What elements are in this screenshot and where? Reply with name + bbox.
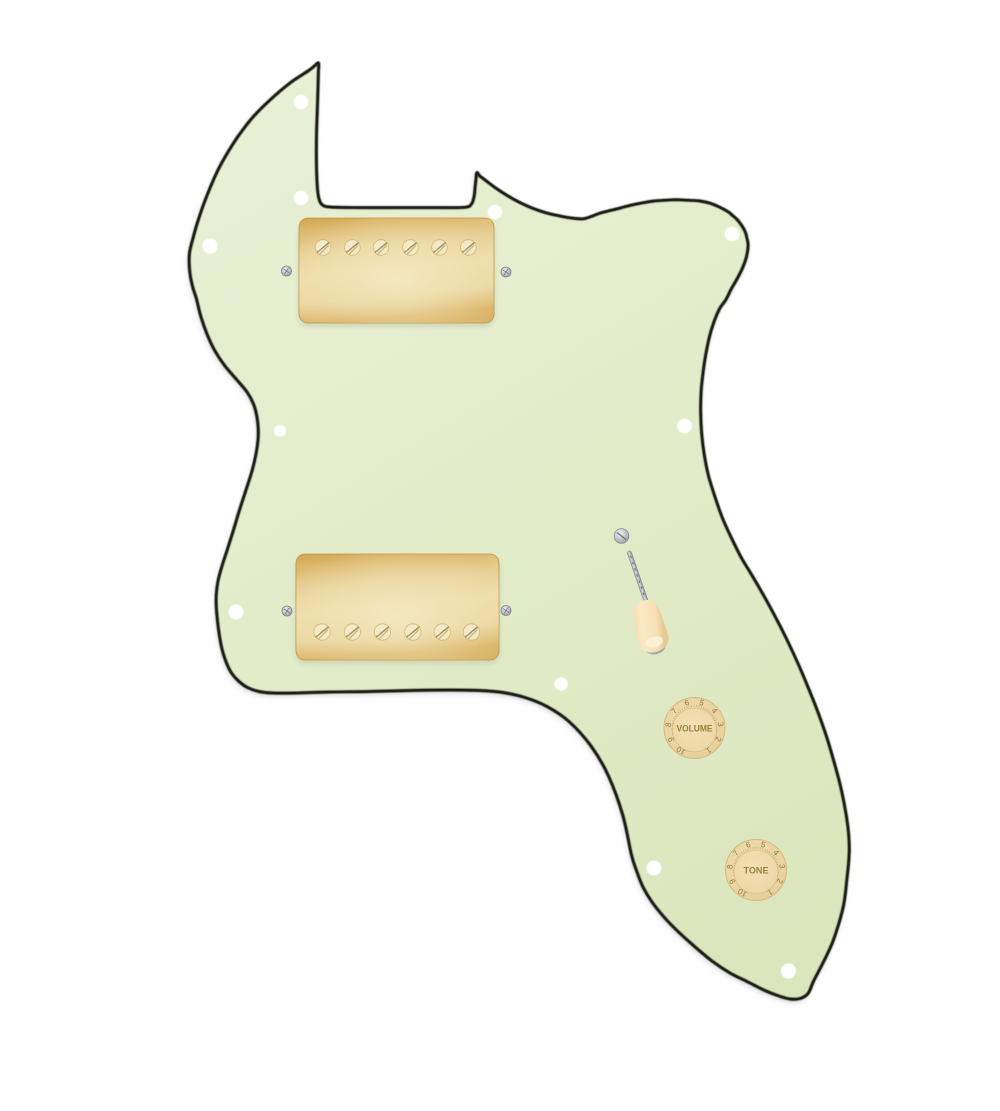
svg-text:TONE: TONE: [744, 866, 769, 876]
svg-text:VOLUME: VOLUME: [677, 724, 713, 734]
